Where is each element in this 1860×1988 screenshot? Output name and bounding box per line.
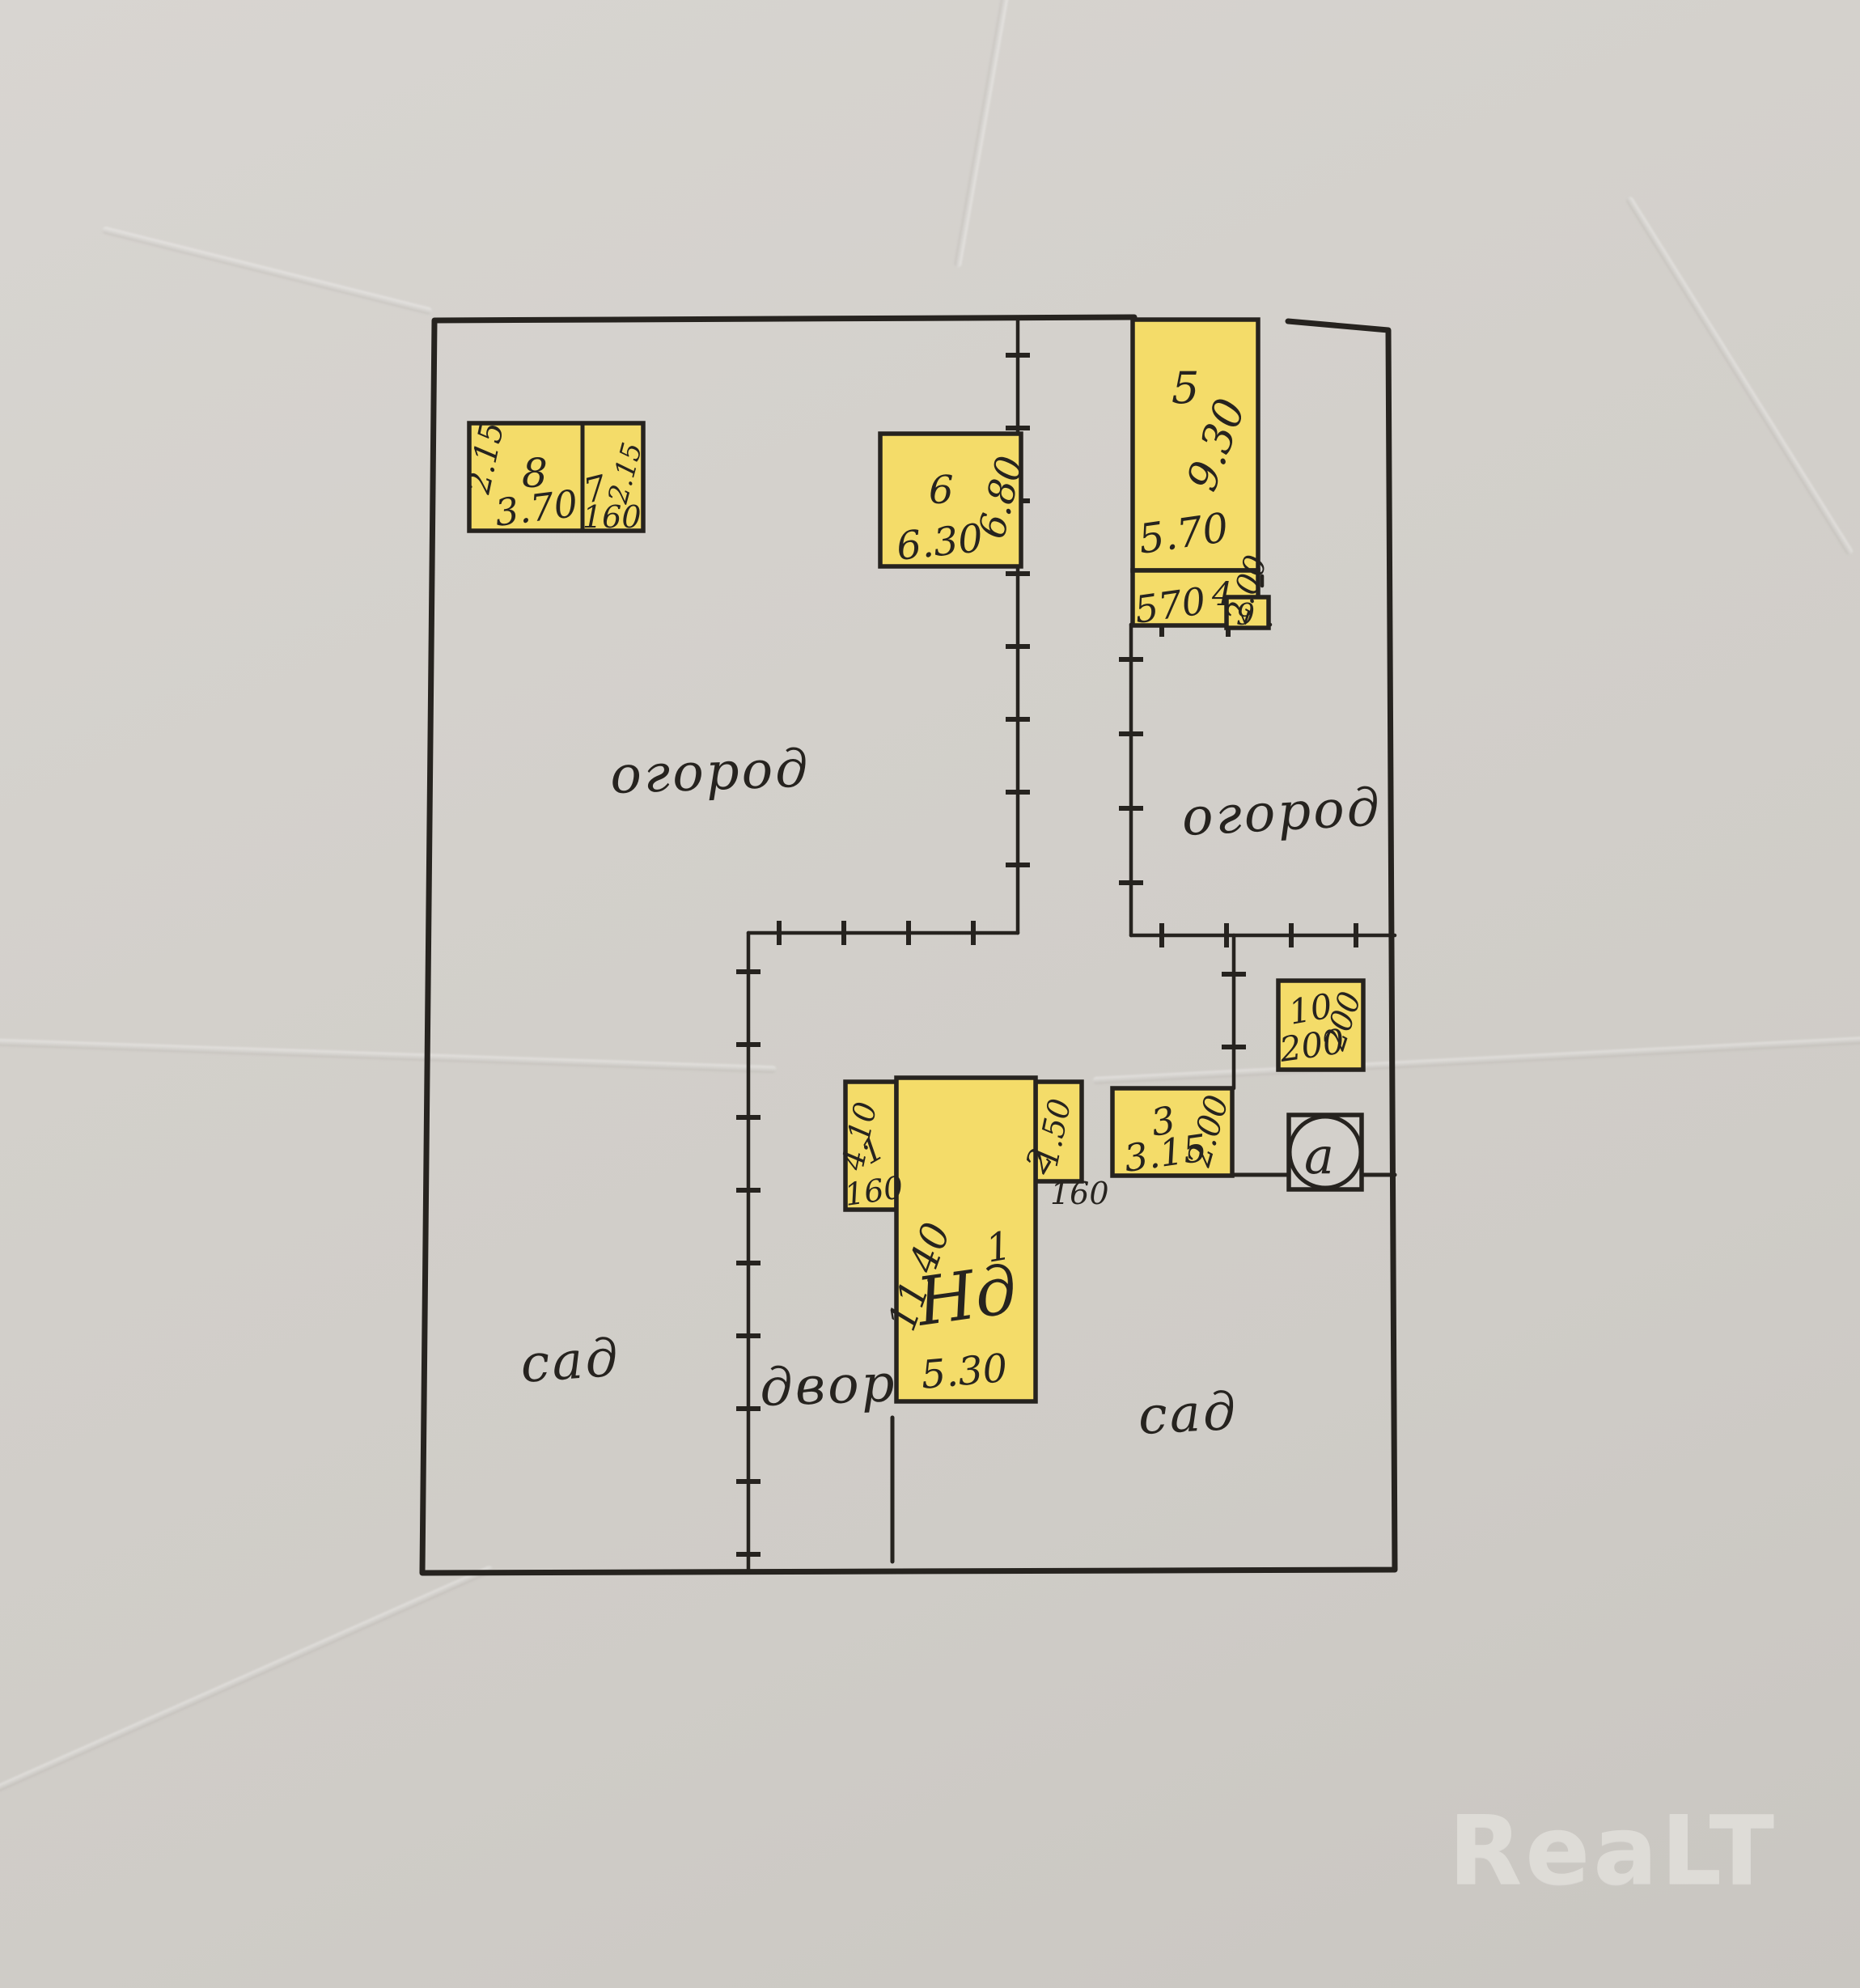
area-label-garden-left: огород: [609, 739, 811, 806]
area-label-orchard-left: сад: [519, 1329, 622, 1395]
scanned-site-plan: огород огород сад двор сад 8 3.70 2.15 7…: [0, 0, 1860, 1988]
area-label-garden-right: огород: [1180, 778, 1383, 848]
realt-watermark: ReaLT: [1448, 1795, 1777, 1906]
well-label: a: [1304, 1126, 1334, 1185]
porch-2-width: 160: [1050, 1176, 1109, 1211]
site-plan: огород огород сад двор сад 8 3.70 2.15 7…: [0, 0, 1860, 1988]
area-label-yard: двор: [759, 1354, 898, 1418]
area-label-orchard-right: сад: [1137, 1382, 1239, 1447]
building-9-number: 9: [1236, 599, 1255, 632]
building-5-number: 5: [1172, 362, 1199, 413]
building-6-number: 6: [929, 468, 954, 513]
house-width: 5.30: [919, 1346, 1009, 1398]
